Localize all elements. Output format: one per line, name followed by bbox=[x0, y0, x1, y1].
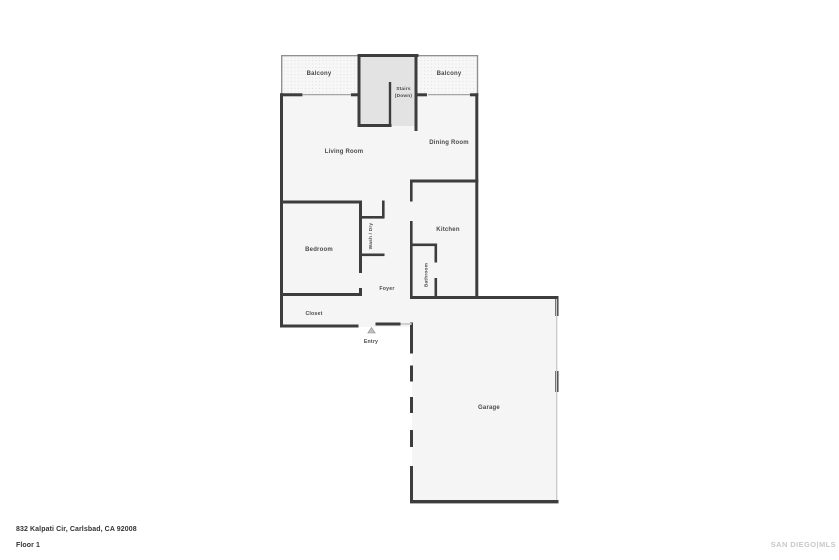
closet-wall-bottom bbox=[280, 325, 359, 328]
railing-side-left bbox=[281, 55, 282, 95]
stairs-wall-right bbox=[415, 54, 418, 131]
stairs-wall-bottom bbox=[358, 124, 392, 127]
entry-door-leaf bbox=[401, 323, 412, 325]
bathroom-wall-right-upper bbox=[435, 244, 438, 263]
bathroom-wall-right-lower bbox=[435, 278, 438, 299]
label-bedroom: Bedroom bbox=[305, 247, 333, 253]
railing-side-right bbox=[477, 55, 478, 95]
floor-fills bbox=[282, 55, 559, 503]
label-stairs-line1: Stairs bbox=[396, 86, 411, 92]
label-balcony-right: Balcony bbox=[437, 71, 462, 77]
balcony-right-slider bbox=[428, 94, 471, 95]
floorplan-page: Balcony Balcony Stairs (Down) Living Roo… bbox=[0, 0, 839, 560]
outer-wall-left bbox=[280, 93, 283, 327]
garage-wall-left-dash-1 bbox=[410, 366, 413, 382]
garage-wall-left-dash-2 bbox=[410, 397, 413, 413]
garage-wall-left-bottom bbox=[410, 466, 413, 503]
balcony-left-slider bbox=[303, 94, 352, 95]
label-wash-dry: Wash / Dry bbox=[368, 223, 374, 250]
label-kitchen: Kitchen bbox=[436, 227, 460, 233]
balcony-stub-2 bbox=[351, 93, 361, 96]
entry-wall bbox=[376, 323, 401, 326]
railing-top-left bbox=[281, 55, 359, 56]
label-garage: Garage bbox=[478, 405, 500, 411]
outer-wall-right bbox=[475, 93, 478, 299]
entry-arrow-icon bbox=[368, 328, 375, 334]
footer-floor-label: Floor 1 bbox=[16, 542, 40, 549]
washdry-wall-top bbox=[362, 216, 385, 219]
bedroom-wall-top bbox=[280, 201, 362, 204]
garage-wall-left-dash-3 bbox=[410, 430, 413, 447]
garage-wall-left-top bbox=[410, 323, 413, 354]
stairs-wall-inner bbox=[389, 82, 391, 127]
garage-wall-top bbox=[410, 296, 559, 299]
kitchen-wall-top bbox=[410, 180, 478, 183]
washdry-jamb bbox=[382, 201, 385, 218]
washdry-wall-bottom bbox=[359, 254, 385, 257]
label-bathroom: Bathroom bbox=[424, 263, 430, 287]
label-closet: Closet bbox=[305, 311, 322, 317]
label-living-room: Living Room bbox=[325, 149, 364, 155]
footer-address: 832 Kalpati Cir, Carlsbad, CA 92008 bbox=[16, 526, 137, 533]
bedroom-wall-right bbox=[359, 201, 362, 274]
kitchen-wall-left-upper bbox=[410, 180, 413, 202]
label-entry: Entry bbox=[364, 339, 378, 345]
garage-wall-right-thin bbox=[556, 299, 557, 500]
label-dining-room: Dining Room bbox=[429, 140, 469, 146]
garage-wall-bottom bbox=[410, 500, 559, 503]
label-balcony-left: Balcony bbox=[307, 71, 332, 77]
label-stairs-line2: (Down) bbox=[395, 93, 413, 99]
railing-top-right bbox=[418, 55, 478, 56]
floorplan-drawing: Balcony Balcony Stairs (Down) Living Roo… bbox=[0, 0, 839, 560]
stairs-wall-top bbox=[358, 54, 419, 57]
mls-watermark: SAN DIEGO|MLS bbox=[771, 540, 836, 549]
label-foyer: Foyer bbox=[379, 286, 394, 292]
balcony-stub-1 bbox=[280, 93, 303, 96]
kitchen-wall-left-lower bbox=[410, 221, 413, 299]
stairs-wall-left bbox=[358, 54, 361, 127]
bedroom-wall-bottom bbox=[280, 293, 362, 296]
balcony-stub-3 bbox=[415, 93, 427, 96]
bathroom-wall-top bbox=[410, 244, 437, 247]
garage-fill bbox=[412, 297, 558, 503]
